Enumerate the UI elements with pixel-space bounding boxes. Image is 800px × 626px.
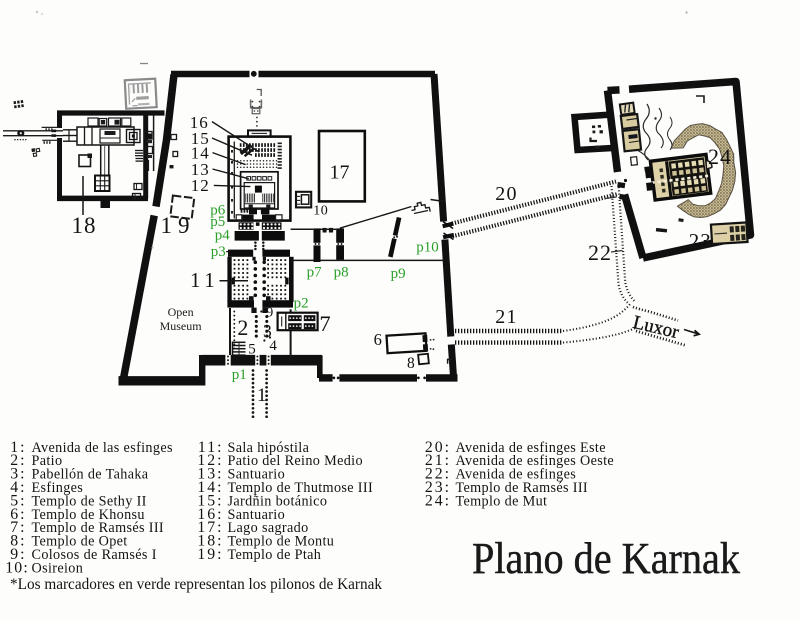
svg-text:10: 10: [313, 204, 328, 219]
svg-text:Templo de Mut: Templo de Mut: [456, 493, 548, 509]
svg-text:5: 5: [248, 342, 256, 358]
svg-text:Templo de Ptah: Templo de Ptah: [228, 547, 322, 563]
svg-text:8: 8: [407, 355, 415, 372]
svg-text:Osireion: Osireion: [32, 560, 84, 576]
svg-text:*Los marcadores en verde repre: *Los marcadores en verde representan los…: [10, 576, 382, 593]
svg-text:12: 12: [191, 176, 210, 195]
svg-text:1: 1: [257, 385, 267, 406]
svg-text:p4: p4: [215, 228, 231, 244]
svg-text:17: 17: [330, 162, 350, 184]
svg-text:p3: p3: [211, 244, 226, 260]
svg-text:p9: p9: [391, 266, 406, 282]
svg-text:16: 16: [190, 113, 209, 132]
svg-text:19:: 19:: [197, 546, 223, 563]
svg-text:2: 2: [237, 315, 248, 340]
svg-text:p7: p7: [307, 264, 323, 280]
svg-text:24:: 24:: [425, 492, 451, 509]
svg-text:7: 7: [319, 311, 330, 336]
svg-text:24: 24: [708, 144, 732, 169]
svg-text:13: 13: [191, 160, 210, 179]
svg-text:Plano de Karnak: Plano de Karnak: [472, 534, 740, 583]
svg-text:19: 19: [161, 213, 196, 238]
svg-text:p8: p8: [334, 264, 349, 280]
svg-text:Museum: Museum: [160, 319, 203, 333]
svg-text:23: 23: [689, 229, 712, 253]
svg-text:Open: Open: [168, 305, 194, 319]
svg-text:10:: 10:: [5, 559, 29, 576]
svg-text:6: 6: [374, 330, 382, 349]
svg-text:9: 9: [266, 305, 273, 320]
svg-text:20: 20: [495, 183, 518, 205]
svg-text:18: 18: [72, 213, 97, 238]
svg-text:21: 21: [495, 306, 518, 328]
svg-text:11: 11: [190, 268, 219, 292]
svg-text:p1: p1: [232, 367, 247, 383]
svg-text:22: 22: [588, 240, 612, 265]
svg-text:p6: p6: [210, 203, 226, 219]
svg-text:p2: p2: [294, 295, 309, 311]
svg-text:p10: p10: [416, 239, 439, 255]
svg-text:4: 4: [269, 338, 277, 354]
